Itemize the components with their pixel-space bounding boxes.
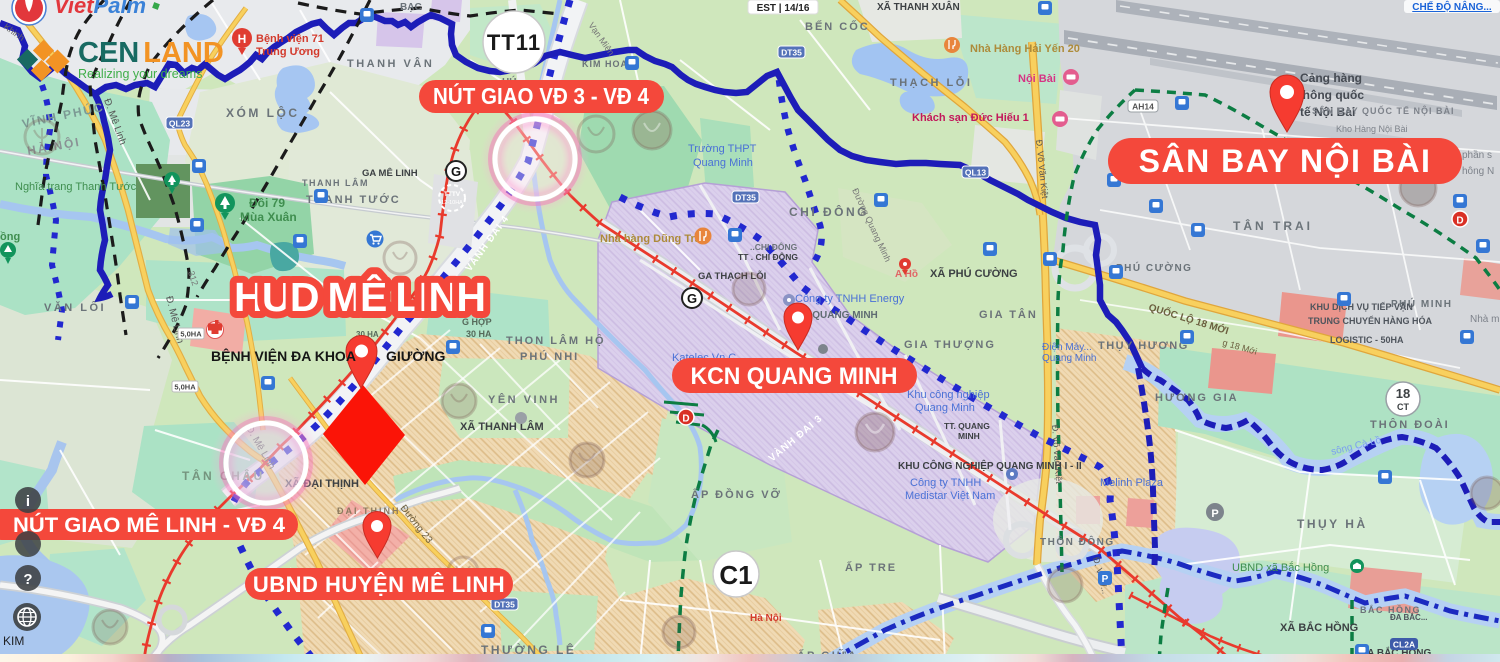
- svg-text:THỤY HƯƠNG: THỤY HƯƠNG: [1098, 340, 1189, 352]
- svg-text:Quang Minh: Quang Minh: [1042, 353, 1096, 364]
- svg-text:i: i: [26, 493, 30, 510]
- svg-text:KIM: KIM: [3, 634, 24, 648]
- svg-text:ẤP TRE: ẤP TRE: [845, 561, 897, 574]
- svg-text:Kho Hàng Nội Bài: Kho Hàng Nội Bài: [1336, 124, 1408, 134]
- svg-text:phần s: phần s: [1462, 149, 1492, 161]
- svg-text:SÂN BAY QUỐC TẾ NỘI BÀI: SÂN BAY QUỐC TẾ NỘI BÀI: [1312, 105, 1455, 116]
- svg-text:Melinh Plaza: Melinh Plaza: [1100, 477, 1164, 489]
- svg-text:18: 18: [1396, 386, 1410, 401]
- svg-text:XÃ BẮC HỒNG: XÃ BẮC HỒNG: [1280, 621, 1358, 634]
- svg-text:Mùa Xuân: Mùa Xuân: [240, 210, 297, 224]
- svg-text:Cảng hàng: Cảng hàng: [1300, 71, 1362, 85]
- svg-text:ẤP ĐỒNG VỠ: ẤP ĐỒNG VỠ: [691, 488, 782, 501]
- svg-text:XÃ THANH LÂM: XÃ THANH LÂM: [460, 420, 544, 433]
- svg-text:AH14: AH14: [1132, 102, 1154, 112]
- svg-text:DT35: DT35: [781, 48, 802, 58]
- svg-text:LOGISTIC - 50HA: LOGISTIC - 50HA: [1330, 335, 1404, 345]
- svg-text:THÔN ĐOÀI: THÔN ĐOÀI: [1370, 418, 1450, 431]
- svg-text:TT . CHI ĐÔNG: TT . CHI ĐÔNG: [738, 251, 798, 262]
- svg-text:YÊN VINH: YÊN VINH: [488, 393, 560, 406]
- svg-text:HƯƠNG GIA: HƯƠNG GIA: [1155, 392, 1239, 404]
- svg-text:Nhà hàng Dũng Trâu: Nhà hàng Dũng Trâu: [600, 233, 708, 245]
- svg-text:Quang Minh: Quang Minh: [915, 402, 975, 414]
- svg-text:NÚT GIAO VĐ 3 - VĐ 4: NÚT GIAO VĐ 3 - VĐ 4: [433, 82, 649, 109]
- svg-text:Khách sạn Đức Hiếu 1: Khách sạn Đức Hiếu 1: [912, 112, 1029, 124]
- svg-text:GA MÊ LINH: GA MÊ LINH: [362, 167, 418, 179]
- svg-text:Trường THPT: Trường THPT: [688, 143, 757, 155]
- svg-text:Bệnh viện 71: Bệnh viện 71: [256, 33, 324, 45]
- svg-text:Medistar Việt Nam: Medistar Việt Nam: [905, 490, 995, 502]
- svg-text:XÃ PHÚ CƯỜNG: XÃ PHÚ CƯỜNG: [930, 267, 1018, 280]
- svg-text:VĂN LÔI: VĂN LÔI: [44, 301, 106, 314]
- svg-text:CHI ĐÔNG: CHI ĐÔNG: [789, 204, 869, 219]
- svg-text:GIA THƯỢNG: GIA THƯỢNG: [904, 339, 996, 351]
- svg-text:KCN QUANG MINH: KCN QUANG MINH: [691, 363, 898, 390]
- svg-text:UBND HUYỆN MÊ LINH: UBND HUYỆN MÊ LINH: [253, 572, 505, 597]
- svg-text:THANH VÂN: THANH VÂN: [347, 57, 434, 70]
- svg-text:C1: C1: [719, 560, 752, 590]
- svg-text:DT35: DT35: [494, 600, 515, 610]
- svg-text:Công ty TNHH: Công ty TNHH: [910, 477, 981, 489]
- svg-text:D: D: [682, 414, 689, 425]
- svg-text:P: P: [1102, 574, 1109, 585]
- svg-text:HUD MÊ LINH: HUD MÊ LINH: [234, 274, 486, 320]
- svg-text:?: ?: [23, 571, 32, 588]
- svg-text:NÚT GIAO MÊ LINH - VĐ 4: NÚT GIAO MÊ LINH - VĐ 4: [13, 513, 285, 537]
- svg-text:THÔN ĐÔNG: THÔN ĐÔNG: [1040, 535, 1115, 548]
- svg-text:THANH LÂM: THANH LÂM: [302, 177, 369, 188]
- svg-text:TTTV: TTTV: [444, 191, 461, 198]
- svg-text:TT11: TT11: [487, 30, 541, 55]
- svg-text:Nghĩa trang Thanh Tước: Nghĩa trang Thanh Tước: [15, 181, 137, 193]
- svg-text:5,0HA: 5,0HA: [174, 383, 196, 392]
- svg-text:EST | 14/16: EST | 14/16: [757, 3, 810, 14]
- svg-text:SÂN BAY NỘI BÀI: SÂN BAY NỘI BÀI: [1139, 143, 1432, 179]
- svg-text:Công ty TNHH Energy: Công ty TNHH Energy: [795, 293, 905, 305]
- svg-text:TRUNG CHUYỂN HÀNG HÓA: TRUNG CHUYỂN HÀNG HÓA: [1308, 315, 1433, 326]
- svg-text:Nhà m: Nhà m: [1470, 314, 1499, 325]
- svg-text:BẠC: BẠC: [400, 2, 422, 13]
- svg-text:BẾN CỐC: BẾN CỐC: [805, 19, 870, 33]
- svg-text:THON LÂM HỘ: THON LÂM HỘ: [506, 334, 606, 347]
- svg-text:KHU DỊCH VỤ TIẾP VẬN: KHU DỊCH VỤ TIẾP VẬN: [1310, 301, 1413, 312]
- svg-text:Realizing your dreams: Realizing your dreams: [78, 67, 202, 81]
- svg-text:BỆNH VIỆN ĐA KHOA: BỆNH VIỆN ĐA KHOA: [211, 347, 356, 364]
- svg-text:CHẾ ĐỘ NÂNG...: CHẾ ĐỘ NÂNG...: [1412, 0, 1492, 13]
- svg-text:KIM HOA: KIM HOA: [582, 59, 628, 69]
- svg-text:D: D: [1456, 216, 1463, 227]
- svg-text:DT35: DT35: [735, 193, 756, 203]
- svg-text:CL2A: CL2A: [1393, 640, 1415, 650]
- svg-text:MINH: MINH: [958, 431, 980, 441]
- svg-text:G: G: [451, 164, 461, 179]
- svg-text:hông N: hông N: [1462, 166, 1494, 177]
- svg-text:ồng: ồng: [0, 231, 20, 243]
- svg-text:Hà Nội: Hà Nội: [750, 613, 782, 624]
- svg-text:Nhà Hàng Hải Yến 20: Nhà Hàng Hải Yến 20: [970, 43, 1080, 55]
- svg-text:CENLAND: CENLAND: [78, 37, 224, 69]
- svg-text:VietPalm: VietPalm: [54, 0, 146, 18]
- svg-text:H: H: [238, 32, 247, 46]
- svg-text:Điện Máy...: Điện Máy...: [1042, 342, 1092, 353]
- svg-text:Khu công nghiệp: Khu công nghiệp: [907, 389, 990, 401]
- svg-text:không quốc: không quốc: [1296, 88, 1364, 102]
- svg-text:GIƯỜNG: GIƯỜNG: [386, 347, 445, 364]
- svg-text:QL23: QL23: [169, 119, 191, 129]
- svg-text:TÂN TRAI: TÂN TRAI: [1233, 218, 1313, 233]
- svg-text:Quang Minh: Quang Minh: [693, 157, 753, 169]
- svg-text:..CHI ĐÔNG: ..CHI ĐÔNG: [750, 241, 798, 252]
- svg-text:Đồi 79: Đồi 79: [249, 196, 285, 210]
- svg-text:QL13: QL13: [965, 168, 987, 178]
- svg-text:30 HA: 30 HA: [466, 329, 492, 339]
- svg-text:Nội Bài: Nội Bài: [1018, 73, 1056, 85]
- svg-text:THẠCH LỖI: THẠCH LỖI: [890, 76, 972, 89]
- svg-text:G: G: [687, 291, 697, 306]
- svg-text:P: P: [1211, 508, 1218, 520]
- svg-text:UBND xã Bắc Hồng: UBND xã Bắc Hồng: [1232, 561, 1329, 574]
- svg-text:PHÚ CƯỜNG: PHÚ CƯỜNG: [1116, 261, 1192, 274]
- svg-text:XÃ THANH XUÂN: XÃ THANH XUÂN: [877, 0, 960, 13]
- svg-text:CT: CT: [1397, 402, 1409, 412]
- svg-text:GIA TÂN: GIA TÂN: [979, 308, 1038, 321]
- svg-text:ĐA BẮC...: ĐA BẮC...: [1390, 613, 1427, 622]
- svg-text:THỤY HÀ: THỤY HÀ: [1297, 516, 1368, 531]
- svg-text:12-10HA: 12-10HA: [441, 200, 463, 206]
- svg-text:TT. QUANG: TT. QUANG: [944, 421, 990, 431]
- svg-text:XÓM LỘC: XÓM LỘC: [226, 105, 300, 120]
- svg-text:PHÚ NHI: PHÚ NHI: [520, 350, 579, 363]
- svg-text:5,0HA: 5,0HA: [180, 330, 202, 339]
- svg-text:Trung Ương: Trung Ương: [256, 46, 320, 58]
